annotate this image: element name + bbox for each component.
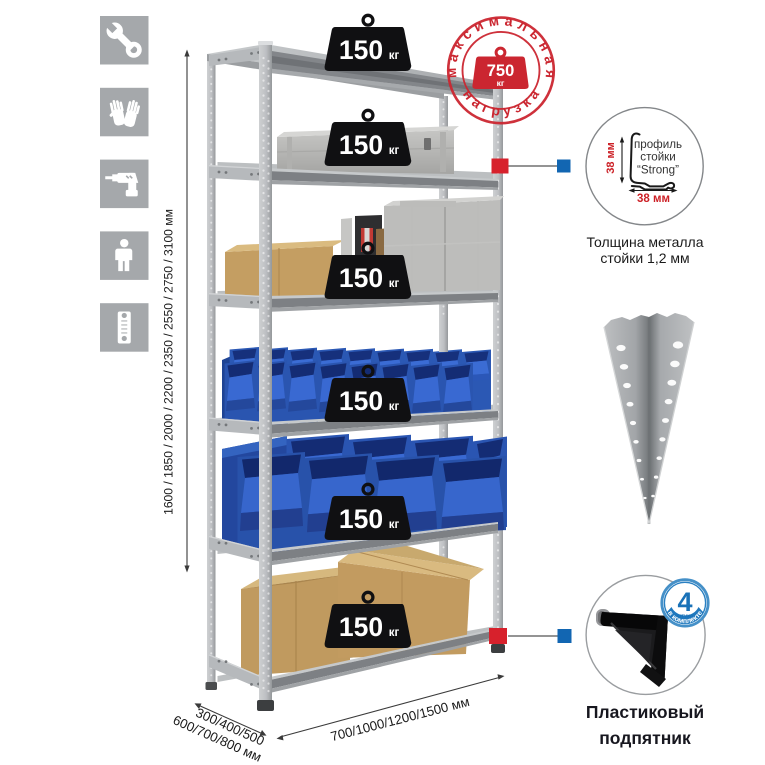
svg-text:Толщина металла: Толщина металла — [587, 234, 704, 250]
svg-text:1600 / 1850 / 2000 / 2200 / 23: 1600 / 1850 / 2000 / 2200 / 2350 / 2550 … — [162, 209, 176, 515]
svg-text:150: 150 — [339, 35, 383, 65]
svg-text:Пластиковый: Пластиковый — [586, 702, 704, 722]
svg-text:кг: кг — [389, 278, 400, 290]
svg-text:кг: кг — [389, 627, 400, 639]
svg-text:150: 150 — [339, 130, 383, 160]
svg-text:150: 150 — [339, 504, 383, 534]
svg-text:профиль: профиль — [634, 138, 682, 151]
svg-text:кг: кг — [389, 145, 400, 157]
svg-text:кг: кг — [389, 401, 400, 413]
svg-text:38 мм: 38 мм — [605, 142, 617, 174]
svg-text:стойки: стойки — [640, 151, 675, 164]
svg-text:кг: кг — [497, 78, 505, 88]
svg-text:“Strong”: “Strong” — [637, 164, 679, 177]
svg-text:кг: кг — [389, 50, 400, 62]
svg-text:150: 150 — [339, 386, 383, 416]
svg-text:подпятник: подпятник — [599, 728, 691, 748]
svg-text:150: 150 — [339, 612, 383, 642]
svg-text:700/1000/1200/1500 мм: 700/1000/1200/1500 мм — [329, 694, 471, 744]
svg-text:стойки 1,2 мм: стойки 1,2 мм — [600, 250, 689, 266]
svg-text:кг: кг — [389, 519, 400, 531]
svg-text:38 мм: 38 мм — [637, 193, 670, 205]
svg-text:4: 4 — [677, 587, 692, 617]
svg-text:150: 150 — [339, 263, 383, 293]
